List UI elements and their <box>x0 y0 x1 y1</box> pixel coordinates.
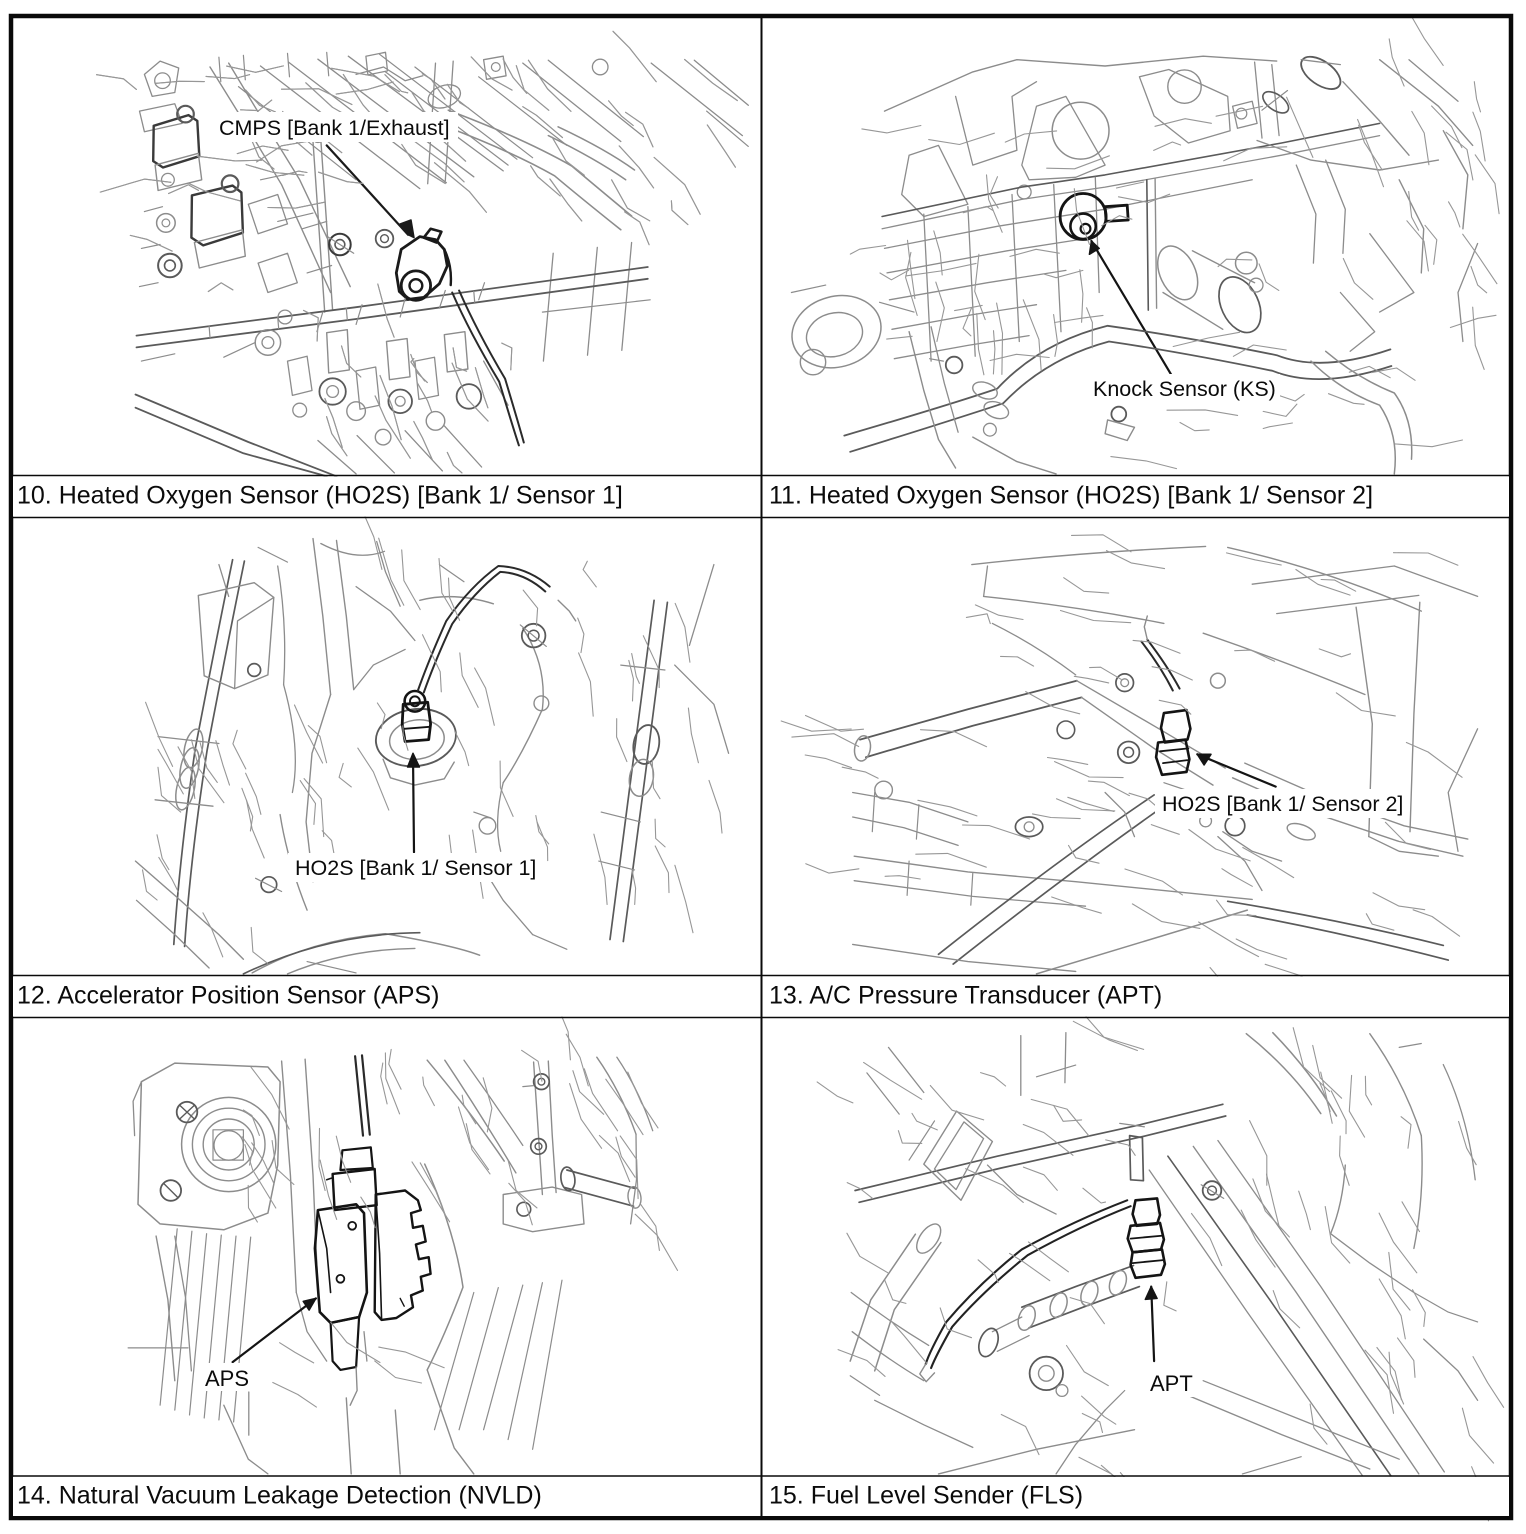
svg-text:13. A/C Pressure Transducer (A: 13. A/C Pressure Transducer (APT) <box>769 982 1162 1010</box>
svg-text:Knock Sensor (KS): Knock Sensor (KS) <box>1093 377 1276 401</box>
svg-text:APT: APT <box>1150 1371 1193 1396</box>
svg-text:15. Fuel Level Sender (FLS): 15. Fuel Level Sender (FLS) <box>769 1482 1083 1510</box>
svg-text:APS: APS <box>205 1366 249 1391</box>
svg-text:HO2S [Bank 1/ Sensor 1]: HO2S [Bank 1/ Sensor 1] <box>295 856 536 880</box>
svg-text:10. Heated Oxygen Sensor (HO2S: 10. Heated Oxygen Sensor (HO2S) [Bank 1/… <box>17 482 623 510</box>
svg-text:14. Natural Vacuum Leakage Det: 14. Natural Vacuum Leakage Detection (NV… <box>17 1482 542 1510</box>
svg-text:11. Heated Oxygen Sensor (HO2S: 11. Heated Oxygen Sensor (HO2S) [Bank 1/… <box>769 482 1373 510</box>
svg-text:12. Accelerator Position Senso: 12. Accelerator Position Sensor (APS) <box>17 982 439 1010</box>
svg-text:CMPS [Bank 1/Exhaust]: CMPS [Bank 1/Exhaust] <box>219 116 450 140</box>
svg-text:HO2S [Bank 1/ Sensor 2]: HO2S [Bank 1/ Sensor 2] <box>1162 792 1403 816</box>
